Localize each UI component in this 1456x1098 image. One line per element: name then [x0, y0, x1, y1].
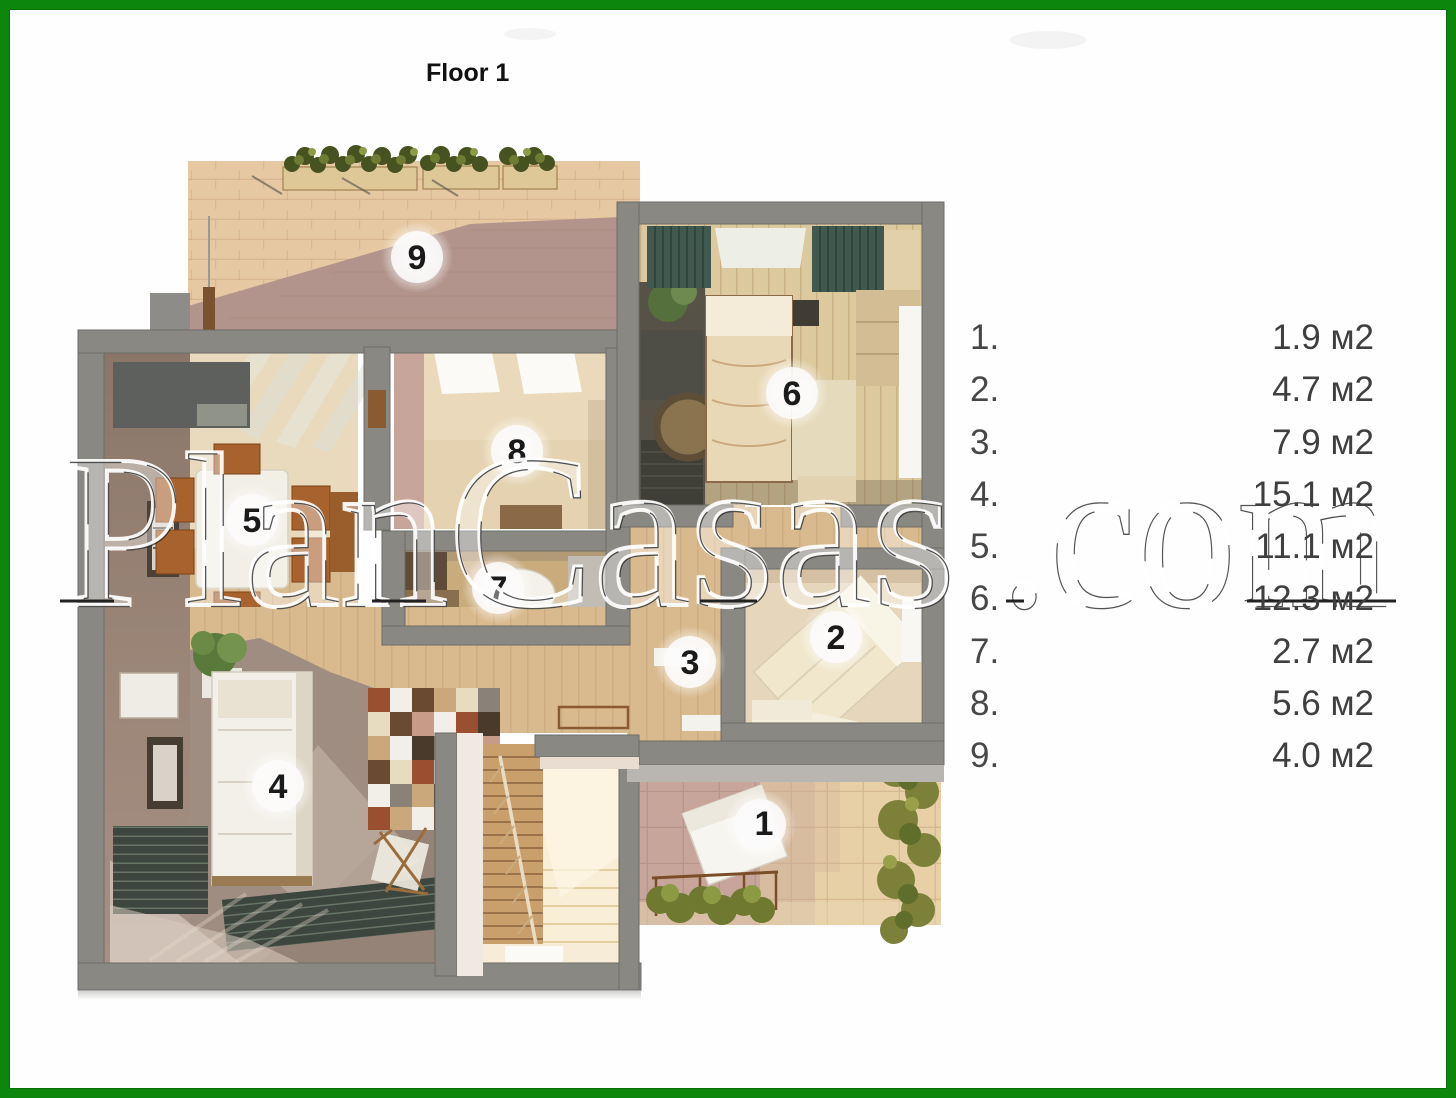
svg-text:5.6 м2: 5.6 м2: [1272, 684, 1374, 723]
svg-text:1.9 м2: 1.9 м2: [1272, 318, 1374, 357]
svg-text:9: 9: [408, 239, 427, 277]
svg-text:3.: 3.: [970, 423, 999, 462]
svg-text:5.: 5.: [970, 527, 999, 566]
svg-text:1: 1: [755, 805, 774, 843]
svg-text:4: 4: [269, 768, 288, 806]
svg-text:9.: 9.: [970, 736, 999, 775]
svg-text:6.: 6.: [970, 579, 999, 618]
svg-text:11.1 м2: 11.1 м2: [1255, 527, 1374, 566]
svg-text:1.: 1.: [970, 318, 999, 357]
svg-text:4.7 м2: 4.7 м2: [1272, 370, 1374, 409]
svg-text:4.0 м2: 4.0 м2: [1272, 736, 1374, 775]
svg-text:15.1 м2: 15.1 м2: [1253, 475, 1374, 514]
svg-text:PlanCasas: PlanCasas: [64, 411, 957, 655]
svg-text:12.3 м2: 12.3 м2: [1253, 579, 1374, 618]
svg-text:8.: 8.: [970, 684, 999, 723]
svg-text:Floor 1: Floor 1: [426, 59, 509, 87]
svg-text:4.: 4.: [970, 475, 999, 514]
svg-text:7.: 7.: [970, 632, 999, 671]
svg-text:2.: 2.: [970, 370, 999, 409]
svg-text:6: 6: [783, 375, 802, 413]
svg-text:7.9 м2: 7.9 м2: [1272, 423, 1374, 462]
svg-text:2.7 м2: 2.7 м2: [1272, 632, 1374, 671]
